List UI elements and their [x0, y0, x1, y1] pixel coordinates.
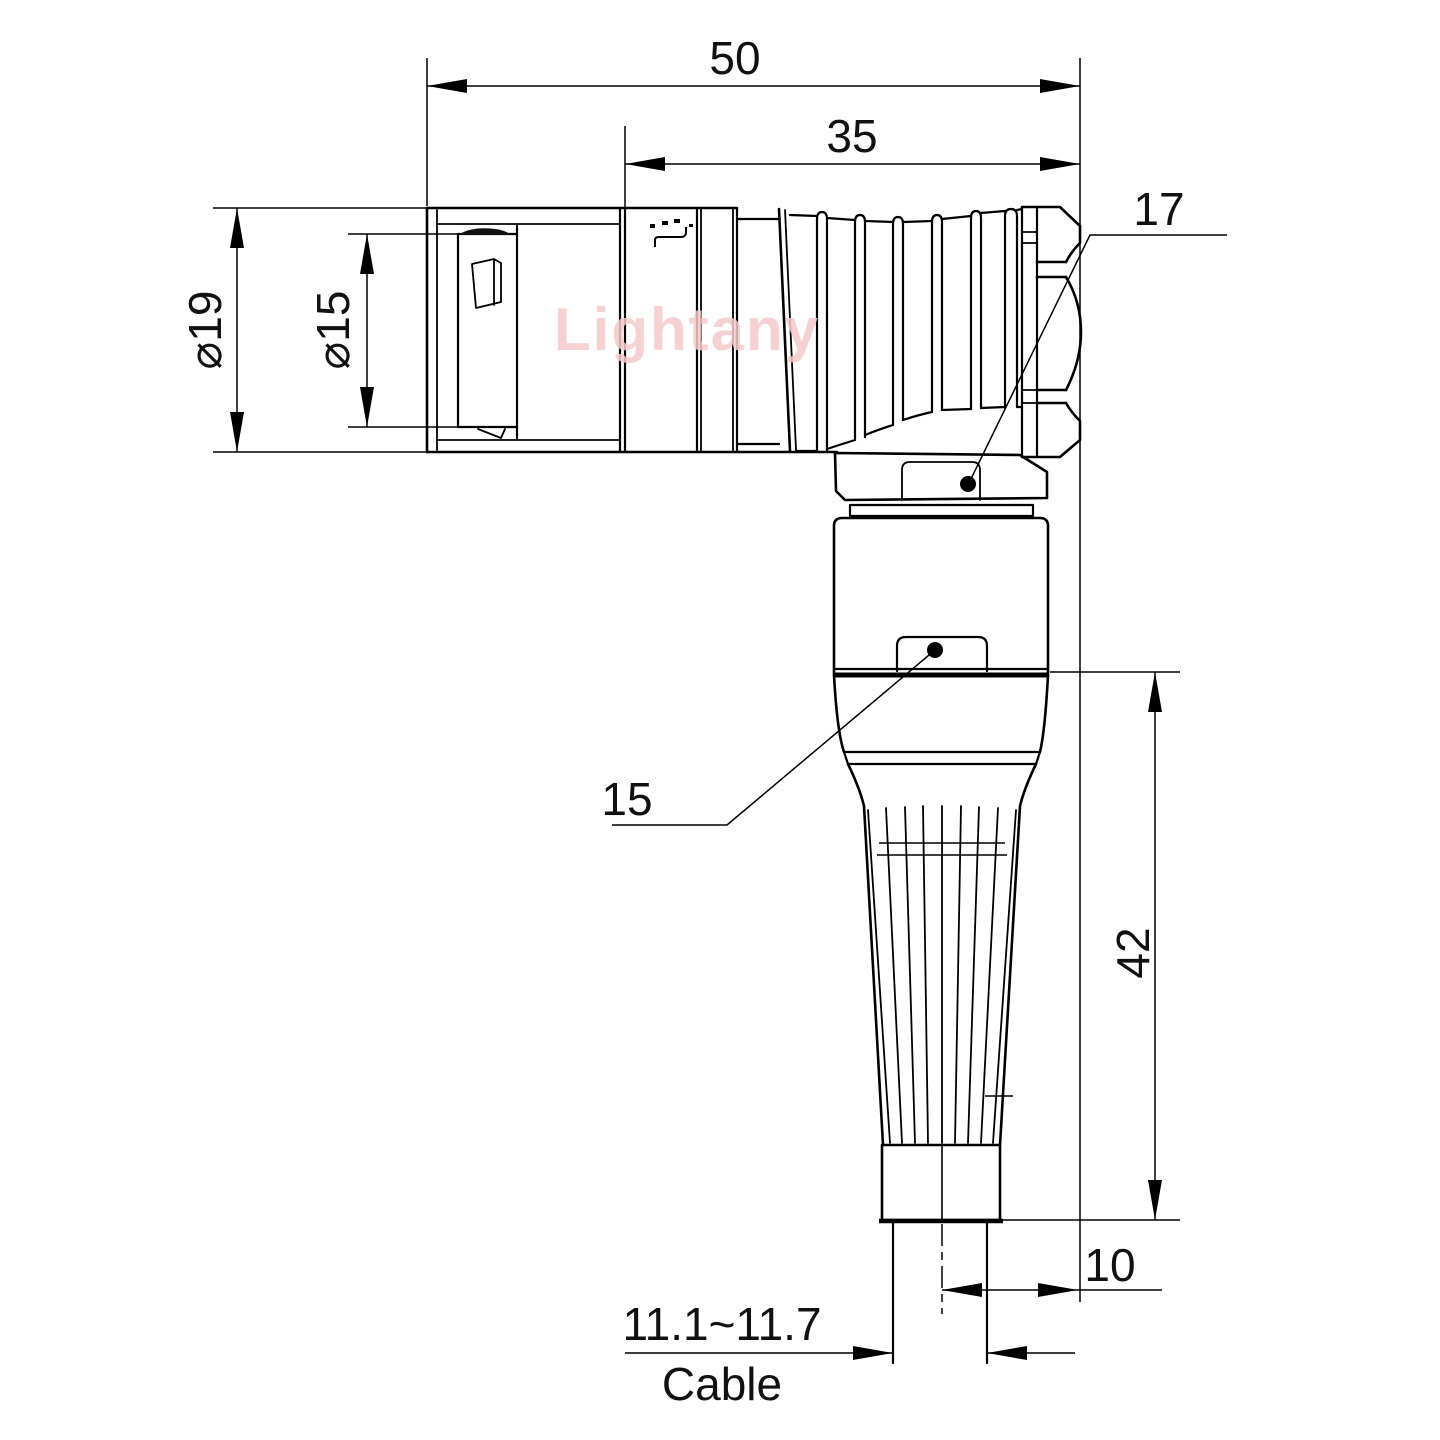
watermark-text: Lightany [554, 296, 820, 363]
dimension-labels: 50 35 ⌀19 ⌀15 17 15 42 10 11.1~11.7 Cabl… [179, 32, 1185, 1410]
grip-fin [855, 215, 865, 439]
marking-dot [662, 221, 668, 225]
arrowhead [1040, 157, 1080, 171]
dim-axis-offset-label: 10 [1084, 1239, 1135, 1291]
grip-top-envelope [790, 209, 1022, 222]
callout-15-label: 15 [601, 773, 652, 825]
leader-dot-15 [927, 642, 943, 658]
bottom-notch [478, 429, 505, 438]
leader-dot-17 [960, 476, 976, 492]
connector-drawing: Lightany 50 35 ⌀19 ⌀15 17 15 42 10 11.1~… [0, 0, 1440, 1440]
washer-ring [850, 505, 1033, 516]
callout-17-label: 17 [1133, 183, 1184, 235]
dim-overall-length-label: 50 [709, 32, 760, 84]
arrowhead [1040, 79, 1080, 93]
nut-waist-lower [1037, 390, 1066, 403]
grip-fin [971, 211, 981, 409]
cable-label: Cable [662, 1358, 782, 1410]
arrowhead [427, 79, 467, 93]
technical-drawing-page: Lightany 50 35 ⌀19 ⌀15 17 15 42 10 11.1~… [0, 0, 1440, 1440]
elbow-body [835, 453, 1047, 516]
hex-nut [1022, 207, 1081, 457]
dia-outer-label: ⌀19 [179, 291, 231, 370]
elbow-block [835, 453, 1047, 500]
nut-waist-upper [1037, 262, 1066, 277]
boot-end-cap [882, 1145, 1000, 1220]
arrowhead [625, 157, 665, 171]
dim-rear-length-label: 35 [826, 110, 877, 162]
strain-relief-boot [848, 764, 1036, 1221]
arrowhead [942, 1283, 982, 1297]
grip-fin [1005, 209, 1017, 408]
vertical-body [834, 518, 1048, 764]
dia-inner-label: ⌀15 [307, 291, 359, 370]
grip-fin [893, 217, 903, 425]
arrowhead [360, 387, 374, 427]
grip-fin [932, 215, 942, 412]
arrowhead [853, 1346, 893, 1360]
nut-top-lobe [1022, 207, 1080, 262]
arrowhead [230, 412, 244, 452]
cable-range-label: 11.1~11.7 [622, 1298, 821, 1350]
leader-line-17 [968, 235, 1227, 485]
latch-key [459, 228, 511, 235]
taper-shoulders [834, 675, 1048, 752]
marking-dot [689, 224, 693, 227]
arrowhead [1038, 1283, 1078, 1297]
marking-dot [674, 219, 680, 223]
nut-collar-ticks [1022, 232, 1037, 403]
nut-middle-lobe [1066, 277, 1081, 390]
arrowhead [360, 234, 374, 274]
latch-window [472, 259, 501, 308]
nut-collar [1022, 207, 1037, 457]
arrowhead [1148, 672, 1162, 712]
arrowhead [230, 208, 244, 248]
body-flat-window [897, 637, 987, 671]
arrowhead [987, 1346, 1027, 1360]
arrowhead [1148, 1180, 1162, 1220]
boot-collar [844, 752, 1040, 764]
clip-mark [655, 227, 686, 247]
dim-vertical-length-label: 42 [1107, 927, 1159, 978]
marking-dot [650, 224, 655, 228]
nut-bottom-lobe [1022, 403, 1080, 457]
boot-flutes [868, 806, 1016, 1143]
